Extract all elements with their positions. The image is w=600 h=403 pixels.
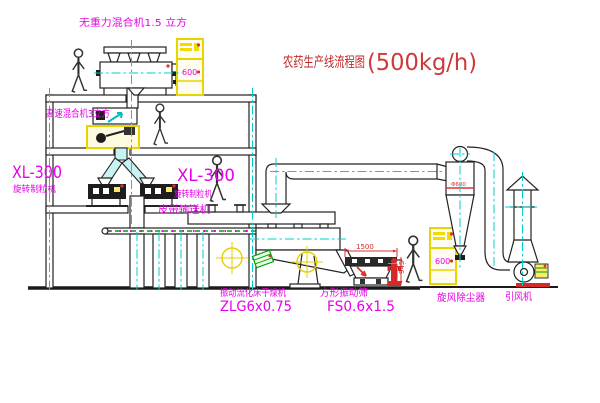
worker-figure-roof bbox=[72, 49, 87, 92]
label-granulator-left-model: XL-300 bbox=[12, 163, 62, 183]
label-cyclone: 旋风除尘器 bbox=[437, 291, 485, 304]
title-capacity: (500kg/h) bbox=[367, 50, 477, 76]
label-granulator-right-name: 旋转制粒机 bbox=[174, 188, 212, 200]
worker-figure-floor2 bbox=[154, 104, 168, 145]
control-cabinet-1: 600 bbox=[177, 39, 203, 95]
fluid-bed-dryer bbox=[188, 205, 359, 288]
cabinet1-code: 600 bbox=[182, 68, 197, 77]
label-granulator-left-name: 旋转制粒机 bbox=[13, 183, 56, 195]
pesticide-line-diagram: 600 bbox=[0, 0, 600, 403]
label-high-speed-mixer: 高速混合机3立方 bbox=[46, 107, 110, 120]
label-dryer-model: ZLG6x0.75 bbox=[220, 299, 292, 315]
label-dryer-name: 振动流化床干燥机 bbox=[220, 287, 286, 299]
granulator-left bbox=[86, 178, 128, 206]
drawing-title: 农药生产线流程图 (500kg/h) bbox=[283, 50, 477, 76]
worker-figure-ground bbox=[407, 236, 423, 282]
discharge-column bbox=[130, 196, 144, 228]
label-screen-name: 方形振动筛 bbox=[320, 286, 368, 299]
cyclone-diameter-text: Φ600 bbox=[451, 182, 466, 188]
dim-1500: 1500 bbox=[356, 243, 374, 251]
label-gravity-mixer: 无重力混合机1.5 立方 bbox=[79, 16, 187, 29]
crosshair-mark-1 bbox=[216, 242, 248, 274]
title-text: 农药生产线流程图 bbox=[283, 55, 365, 71]
cabinet2-code: 600 bbox=[435, 257, 450, 266]
label-fan: 引风机 bbox=[505, 290, 532, 303]
label-belt-conveyor: 皮带输送机 bbox=[158, 203, 210, 216]
label-screen-model: FS0.6x1.5 bbox=[327, 299, 395, 315]
label-granulator-right-model: XL-300 bbox=[177, 166, 235, 186]
control-cabinet-2: 600 bbox=[430, 228, 456, 284]
